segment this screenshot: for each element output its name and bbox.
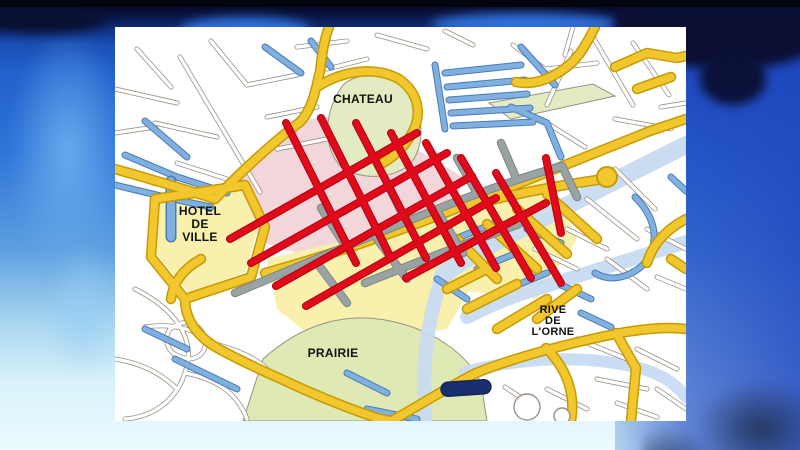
chateau-label: CHATEAU [333,92,393,106]
world-map-left-continent [8,26,128,281]
world-map-dark-continent [700,53,766,105]
lollipop-road-circle [597,167,617,187]
roundabout-small [554,408,570,421]
svg-text:DE: DE [191,217,208,231]
roundabout-large [514,394,540,420]
svg-text:VILLE: VILLE [182,230,218,244]
svg-text:L'ORNE: L'ORNE [532,326,575,338]
svg-text:HOTEL: HOTEL [179,204,221,218]
world-map-left-continent2 [48,245,118,375]
broadcast-frame: CHATEAU HOTEL DE VILLE PRAIRIE RIVE DE L… [0,0,800,450]
pond [441,379,492,396]
city-map-panel: CHATEAU HOTEL DE VILLE PRAIRIE RIVE DE L… [115,27,686,421]
world-map-dark-continent [0,7,105,33]
city-map-svg: CHATEAU HOTEL DE VILLE PRAIRIE RIVE DE L… [115,27,686,421]
top-black-bar [0,0,800,7]
prairie-label: PRAIRIE [308,346,359,360]
